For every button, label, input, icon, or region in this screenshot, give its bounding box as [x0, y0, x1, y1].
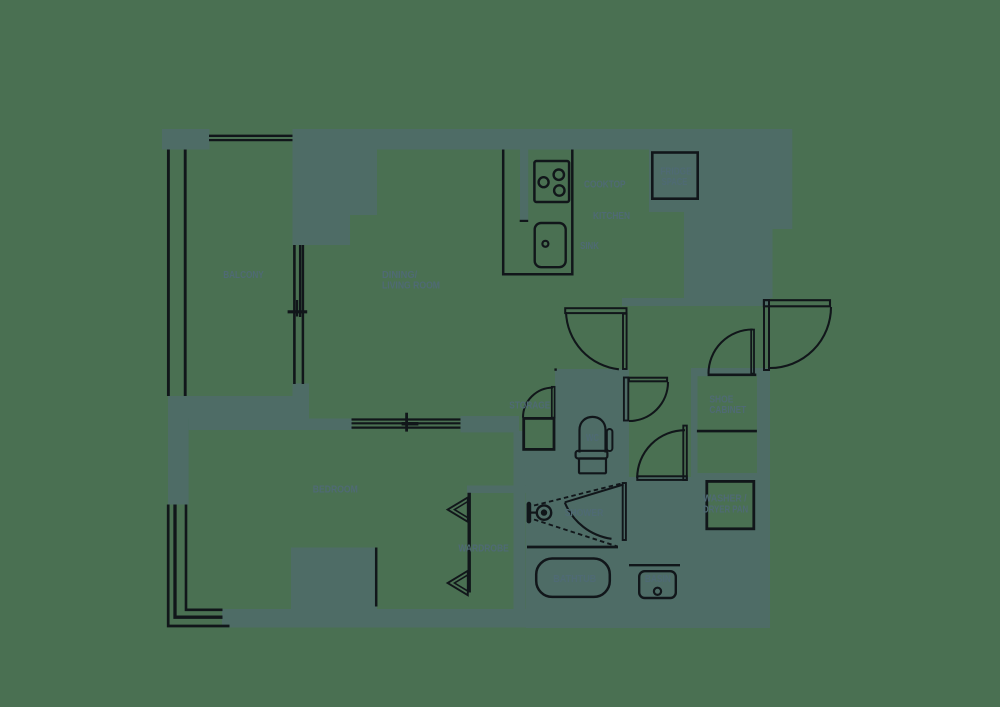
svg-text:WASHER /: WASHER / — [703, 494, 747, 505]
svg-text:WARDROBE: WARDROBE — [458, 544, 509, 555]
svg-text:LIVING ROOM: LIVING ROOM — [382, 281, 440, 292]
svg-text:SPACE: SPACE — [662, 177, 688, 188]
svg-text:BASIN: BASIN — [645, 574, 671, 585]
svg-text:BALCONY: BALCONY — [223, 270, 264, 281]
svg-text:KITCHEN: KITCHEN — [593, 211, 630, 222]
svg-text:STORAGE: STORAGE — [509, 401, 550, 412]
svg-text:COOKTOP: COOKTOP — [584, 180, 626, 191]
svg-text:SHOE: SHOE — [709, 394, 733, 405]
svg-text:WC: WC — [586, 433, 599, 444]
svg-text:DRYER PAN: DRYER PAN — [703, 504, 748, 515]
svg-text:SHOWER: SHOWER — [565, 508, 604, 519]
svg-text:FRIDGE: FRIDGE — [660, 167, 691, 178]
svg-text:BATHTUB: BATHTUB — [553, 574, 596, 585]
svg-text:CABINET: CABINET — [709, 405, 746, 416]
svg-text:DINING/: DINING/ — [382, 270, 417, 281]
svg-text:BEDROOM: BEDROOM — [313, 485, 358, 496]
svg-text:SINK: SINK — [580, 241, 599, 252]
